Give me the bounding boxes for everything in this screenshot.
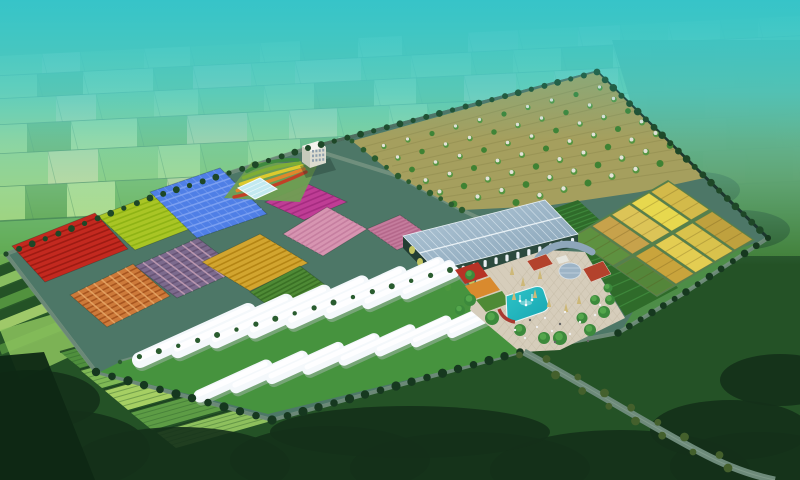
aerial-farm-render (0, 0, 800, 480)
sky-haze-tint (0, 0, 800, 140)
scene-svg (0, 0, 800, 480)
